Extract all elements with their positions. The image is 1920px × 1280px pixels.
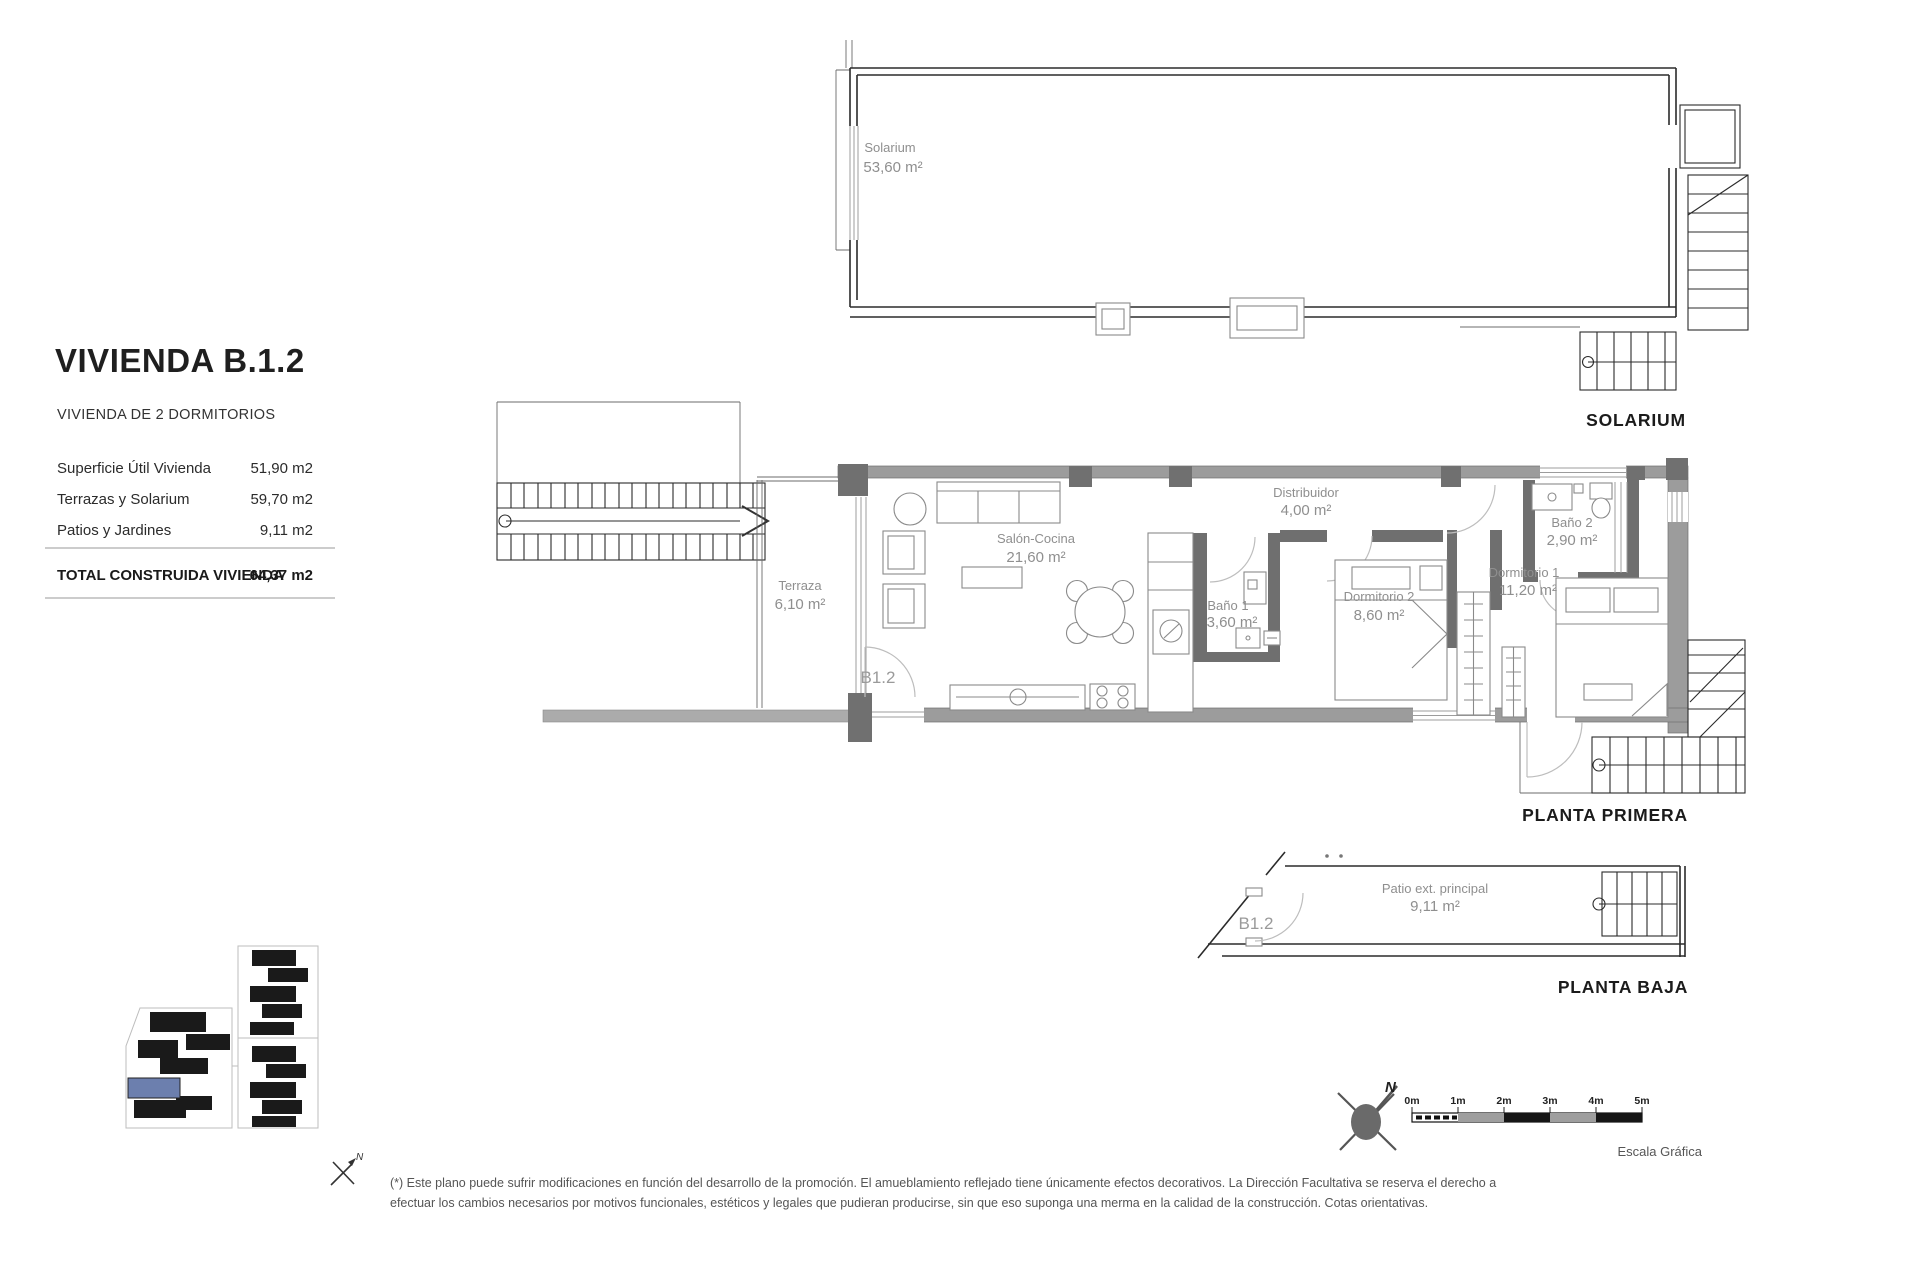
scale-bar: 0m 1m 2m 3m 4m 5m Escala Gráfica	[1404, 1095, 1702, 1159]
area-row-value: 9,11 m2	[260, 522, 313, 539]
highlighted-unit-b12	[128, 1078, 180, 1098]
scale-bar-caption: Escala Gráfica	[1617, 1144, 1702, 1159]
solarium-landing-box	[1680, 105, 1740, 168]
dimension-dot	[1339, 854, 1343, 858]
unit-label-baja: B1.2	[1239, 914, 1274, 933]
room-label-distribuidor: Distribuidor	[1273, 485, 1339, 500]
dormitorio1-door-arc	[1447, 485, 1495, 533]
cooktop	[1090, 684, 1135, 710]
room-area-solarium: 53,60 m²	[863, 159, 922, 176]
access-stairs	[497, 402, 768, 560]
plan-title-baja: PLANTA BAJA	[1558, 977, 1688, 997]
bed-dormitorio2	[1335, 560, 1447, 700]
terraza-lower-parapet	[543, 710, 853, 722]
room-label-solarium: Solarium	[864, 140, 915, 155]
area-row-value: 51,90 m2	[250, 460, 313, 477]
solarium-left-window	[850, 126, 858, 240]
room-area-salon: 21,60 m²	[1006, 549, 1065, 566]
sofa	[937, 482, 1060, 523]
disclaimer-line-1: (*) Este plano puede sufrir modificacion…	[390, 1176, 1496, 1190]
solarium-plan: Solarium 53,60 m² SOLARIUM	[836, 40, 1748, 430]
solarium-wall-stub	[846, 40, 852, 68]
solarium-vent-small	[1096, 303, 1130, 335]
lobby-door-arc	[1527, 722, 1582, 777]
kitchen-tall-unit	[1148, 533, 1193, 712]
title-block: VIVIENDA B.1.2 VIVIENDA DE 2 DORMITORIOS…	[45, 342, 335, 598]
unit-label-primera: B1.2	[861, 668, 896, 687]
bed-dormitorio1	[1556, 578, 1668, 717]
disclaimer: (*) Este plano puede sufrir modificacion…	[390, 1176, 1496, 1210]
floorplan-sheet: VIVIENDA B.1.2 VIVIENDA DE 2 DORMITORIOS…	[0, 0, 1920, 1280]
entry-door-opening	[872, 706, 924, 724]
solarium-stairs-bottom	[1460, 327, 1676, 390]
room-area-terraza: 6,10 m²	[775, 596, 826, 613]
plan-title-primera: PLANTA PRIMERA	[1522, 805, 1688, 825]
room-label-dormitorio1: Dormitorio 1	[1489, 565, 1560, 580]
area-row-label: Terrazas y Solarium	[57, 491, 190, 508]
wardrobe-dormitorio1	[1502, 647, 1525, 717]
scale-tick-marks	[1412, 1107, 1642, 1113]
area-row-label: Superficie Útil Vivienda	[57, 460, 212, 477]
armchair	[883, 531, 925, 574]
dining-table-set	[1067, 581, 1134, 644]
room-label-patio: Patio ext. principal	[1382, 881, 1488, 896]
scale-tick: 3m	[1542, 1095, 1557, 1107]
room-label-salon: Salón-Cocina	[997, 531, 1076, 546]
page-title: VIVIENDA B.1.2	[55, 342, 305, 379]
site-key-plan	[126, 946, 318, 1128]
room-area-bano2: 2,90 m²	[1547, 532, 1598, 549]
room-label-dormitorio2: Dormitorio 2	[1344, 589, 1415, 604]
round-side-table	[894, 493, 926, 525]
scale-tick: 5m	[1634, 1095, 1649, 1107]
mini-north-arrow-icon: N	[331, 1152, 364, 1185]
scale-tick: 2m	[1496, 1095, 1511, 1107]
wardrobe-dormitorio2	[1457, 592, 1490, 715]
compass-north-label: N	[1385, 1079, 1397, 1096]
area-row-value: 59,70 m2	[250, 491, 313, 508]
solarium-lot-line	[836, 70, 850, 250]
solarium-stairs-right	[1688, 175, 1748, 330]
stair-direction-arrow	[742, 506, 768, 536]
page-subtitle: VIVIENDA DE 2 DORMITORIOS	[57, 407, 275, 423]
plan-title-solarium: SOLARIUM	[1586, 410, 1686, 430]
dimension-dot	[1325, 854, 1329, 858]
room-area-patio: 9,11 m²	[1410, 898, 1460, 915]
disclaimer-line-2: efectuar los cambios necesarios por moti…	[390, 1196, 1428, 1210]
armchair	[883, 584, 925, 628]
window-right-wall	[1668, 492, 1688, 522]
room-area-dormitorio2: 8,60 m²	[1354, 607, 1405, 624]
room-label-bano2: Baño 2	[1551, 515, 1592, 530]
room-area-bano1: 3,60 m²	[1207, 614, 1258, 631]
patio-bottom-wall	[1208, 944, 1685, 956]
window-top-bano2	[1540, 464, 1626, 480]
tv-bench	[962, 567, 1022, 588]
north-compass-icon: N	[1338, 1079, 1397, 1150]
room-label-bano1: Baño 1	[1207, 598, 1248, 613]
floorplan-drawing: VIVIENDA B.1.2 VIVIENDA DE 2 DORMITORIOS…	[0, 0, 1920, 1280]
scale-tick: 0m	[1404, 1095, 1419, 1107]
solarium-vent-wide	[1230, 298, 1304, 338]
total-row-value: 64,37 m2	[250, 567, 313, 584]
room-label-terraza: Terraza	[778, 578, 822, 593]
kitchen-island	[950, 685, 1085, 710]
mini-north-label: N	[356, 1152, 364, 1163]
room-area-dormitorio1: 11,20 m²	[1499, 582, 1557, 599]
room-area-distribuidor: 4,00 m²	[1281, 502, 1332, 519]
stairs-planta-baja	[1593, 872, 1677, 936]
scale-tick: 4m	[1588, 1095, 1603, 1107]
planta-baja-plan: Patio ext. principal 9,11 m² B1.2 PLANTA…	[1198, 852, 1688, 997]
scale-tick: 1m	[1450, 1095, 1465, 1107]
solarium-right-wall	[1669, 68, 1676, 317]
solarium-top-wall	[850, 68, 1676, 75]
area-row-label: Patios y Jardines	[57, 522, 171, 539]
planta-primera-plan: Terraza 6,10 m² Salón-Cocina 21,60 m² Ba…	[497, 402, 1745, 825]
patio-diagonal-wall	[1198, 852, 1285, 958]
